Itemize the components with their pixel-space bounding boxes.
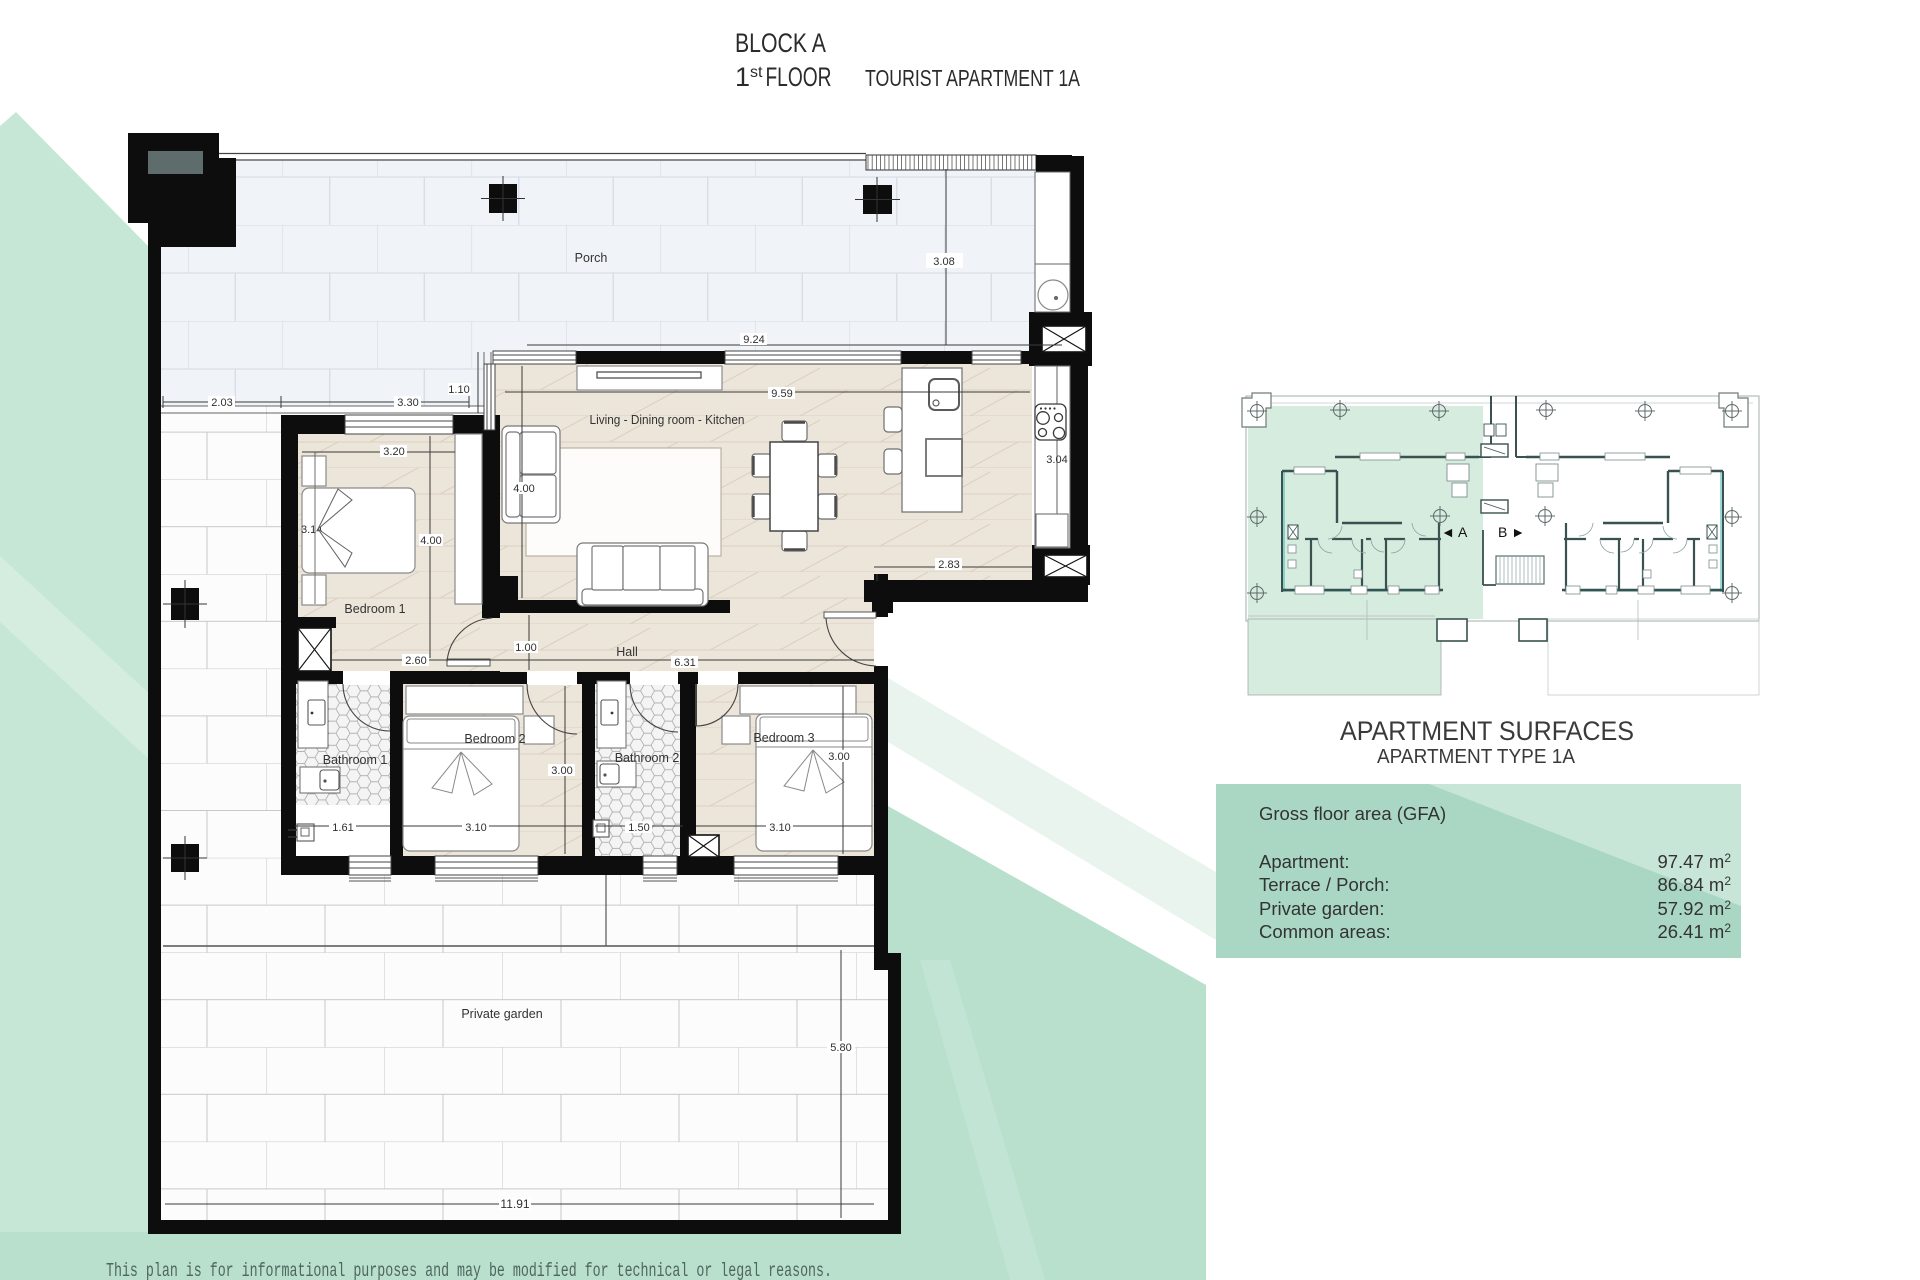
- svg-text:Hall: Hall: [616, 645, 638, 659]
- svg-text:2.83: 2.83: [938, 559, 959, 571]
- svg-text:6.31: 6.31: [674, 657, 695, 669]
- svg-text:3.00: 3.00: [828, 751, 849, 763]
- svg-text:3.10: 3.10: [465, 822, 486, 834]
- svg-text:Bathroom 1: Bathroom 1: [323, 753, 388, 767]
- svg-text:3.10: 3.10: [769, 822, 790, 834]
- svg-text:1stFLOOR: 1stFLOOR: [735, 62, 831, 92]
- svg-text:TOURIST APARTMENT 1A: TOURIST APARTMENT 1A: [865, 65, 1081, 91]
- svg-text:Gross floor area (GFA): Gross floor area (GFA): [1259, 803, 1446, 824]
- svg-text:9.24: 9.24: [743, 334, 764, 346]
- svg-text:1.61: 1.61: [332, 822, 353, 834]
- svg-text:Terrace / Porch:: Terrace / Porch:: [1259, 874, 1390, 895]
- svg-text:Porch: Porch: [575, 251, 608, 265]
- svg-text:26.41 m2: 26.41 m2: [1657, 921, 1731, 942]
- svg-text:57.92 m2: 57.92 m2: [1657, 898, 1731, 919]
- svg-text:Apartment:: Apartment:: [1259, 851, 1350, 872]
- svg-text:11.91: 11.91: [500, 1197, 529, 1211]
- svg-text:Bedroom 2: Bedroom 2: [464, 732, 525, 746]
- svg-text:Living - Dining room - Kitchen: Living - Dining room - Kitchen: [590, 413, 745, 427]
- svg-text:BLOCK A: BLOCK A: [735, 28, 826, 58]
- svg-text:Common areas:: Common areas:: [1259, 921, 1391, 942]
- svg-text:Private garden:: Private garden:: [1259, 898, 1384, 919]
- svg-text:1.50: 1.50: [628, 822, 649, 834]
- svg-text:3.30: 3.30: [397, 397, 418, 409]
- svg-text:97.47 m2: 97.47 m2: [1657, 851, 1731, 872]
- svg-text:4.00: 4.00: [513, 483, 534, 495]
- svg-text:3.08: 3.08: [933, 256, 954, 268]
- svg-text:3.04: 3.04: [1046, 454, 1067, 466]
- svg-text:◄ A: ◄ A: [1441, 524, 1468, 540]
- svg-text:4.00: 4.00: [420, 535, 441, 547]
- svg-text:Bathroom 2: Bathroom 2: [615, 751, 680, 765]
- svg-text:This plan is for informational: This plan is for informational purposes …: [106, 1260, 832, 1280]
- svg-text:1.10: 1.10: [448, 384, 469, 396]
- svg-text:APARTMENT TYPE 1A: APARTMENT TYPE 1A: [1377, 746, 1576, 768]
- svg-text:3.20: 3.20: [383, 446, 404, 458]
- svg-text:Bedroom 1: Bedroom 1: [344, 602, 405, 616]
- svg-text:2.60: 2.60: [405, 655, 426, 667]
- svg-text:B ►: B ►: [1498, 524, 1525, 540]
- svg-text:Private garden: Private garden: [461, 1007, 542, 1021]
- svg-text:2.03: 2.03: [211, 397, 232, 409]
- svg-text:1.00: 1.00: [515, 642, 536, 654]
- svg-text:86.84 m2: 86.84 m2: [1657, 874, 1731, 895]
- svg-text:3.00: 3.00: [551, 765, 572, 777]
- svg-text:5.80: 5.80: [830, 1042, 851, 1054]
- svg-text:APARTMENT SURFACES: APARTMENT SURFACES: [1340, 716, 1634, 746]
- svg-text:9.59: 9.59: [771, 388, 792, 400]
- svg-text:Bedroom 3: Bedroom 3: [753, 731, 814, 745]
